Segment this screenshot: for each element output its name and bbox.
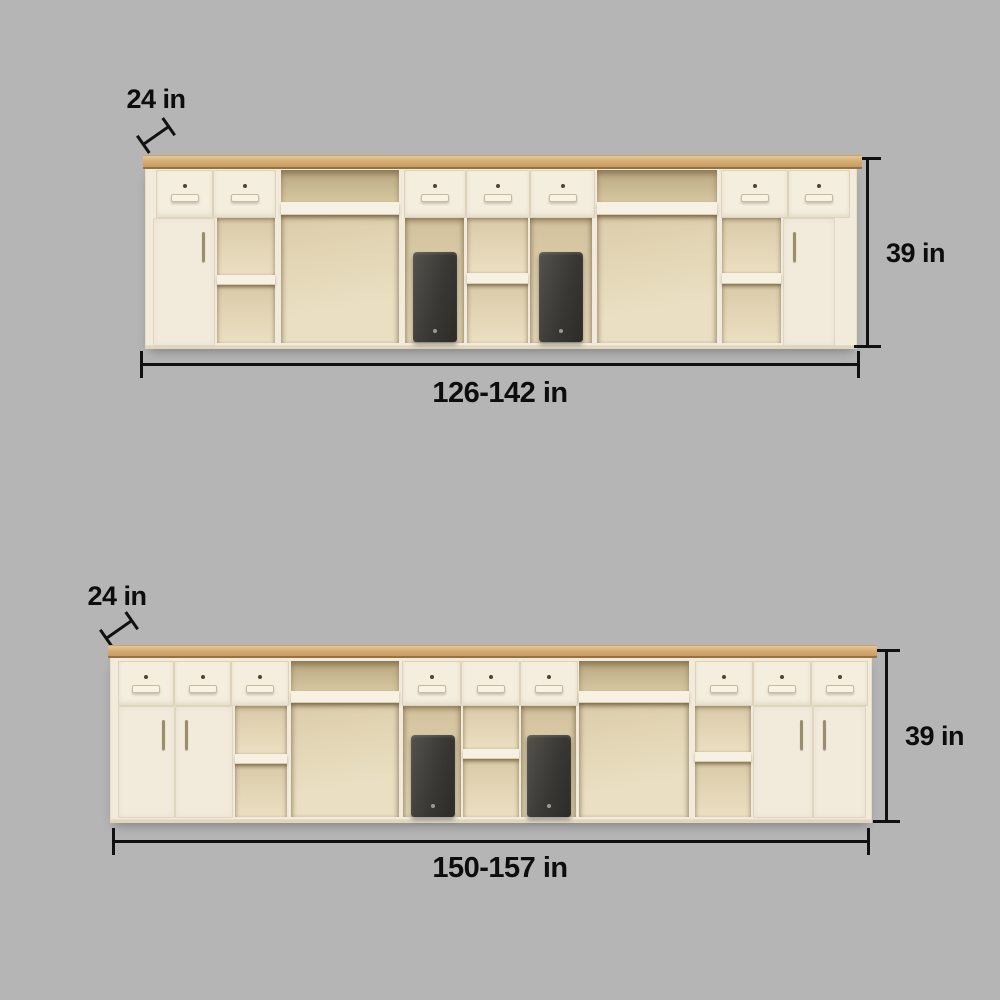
height-dimension-label: 39 in — [905, 721, 995, 752]
drawer — [402, 661, 461, 706]
shelf-ledge — [467, 273, 528, 284]
cabinet-body — [145, 166, 857, 349]
open-cubby — [695, 762, 751, 817]
drawer — [118, 661, 174, 706]
cabinet-door — [813, 706, 866, 818]
shelf-ledge — [463, 749, 519, 759]
wood-countertop — [143, 155, 862, 169]
open-compartment — [579, 703, 689, 817]
cabinet-door — [153, 218, 215, 346]
width-dimension-line — [112, 840, 870, 843]
door-handle — [793, 232, 796, 262]
pc-tower — [539, 252, 583, 342]
width-dimension-line — [140, 363, 860, 366]
door-handle — [185, 720, 188, 750]
cabinet-door — [118, 706, 175, 818]
open-cubby — [463, 706, 519, 749]
open-cubby — [695, 706, 751, 752]
cabinet-door — [175, 706, 233, 818]
open-cubby — [722, 284, 781, 343]
shelf-ledge — [217, 275, 275, 285]
drawer — [788, 170, 850, 218]
open-compartment-top — [597, 170, 717, 202]
door-handle — [162, 720, 165, 750]
open-cubby — [463, 759, 519, 817]
drawer — [695, 661, 753, 706]
drawer — [520, 661, 578, 706]
desk-return-shelf — [597, 202, 717, 215]
pc-tower — [411, 735, 455, 817]
open-cubby — [467, 284, 528, 343]
open-cubby — [722, 218, 781, 273]
drawer — [404, 170, 466, 218]
desk-return-shelf — [579, 691, 689, 703]
drawer — [213, 170, 276, 218]
height-dimension-line — [885, 649, 888, 823]
height-dimension-line — [866, 157, 869, 348]
depth-dimension-label: 24 in — [81, 581, 153, 612]
drawer — [461, 661, 520, 706]
desk-return-shelf — [281, 202, 399, 215]
door-handle — [800, 720, 803, 750]
wood-countertop — [108, 645, 877, 658]
open-cubby — [235, 764, 287, 817]
drawer — [156, 170, 213, 218]
width-dimension-label: 150-157 in — [350, 852, 650, 885]
cabinet-door — [783, 218, 835, 346]
cabinet-126-142 — [145, 155, 857, 349]
shelf-ledge — [695, 752, 751, 762]
open-compartment — [291, 703, 399, 817]
cabinet-door — [753, 706, 813, 818]
depth-tick-icon — [105, 619, 133, 640]
drawer — [530, 170, 595, 218]
open-compartment-top — [291, 661, 399, 691]
open-cubby — [235, 706, 287, 754]
open-compartment-top — [579, 661, 689, 691]
drawer — [721, 170, 788, 218]
drawer — [811, 661, 868, 706]
open-compartment — [597, 215, 717, 343]
depth-dimension-label: 24 in — [120, 84, 192, 115]
cabinet-body — [110, 655, 872, 823]
shelf-ledge — [722, 273, 781, 284]
shelf-ledge — [235, 754, 287, 764]
cabinet-150-157 — [110, 645, 872, 823]
open-compartment-top — [281, 170, 399, 202]
pc-tower — [413, 252, 457, 342]
desk-return-shelf — [291, 691, 399, 703]
pc-tower — [527, 735, 571, 817]
door-handle — [823, 720, 826, 750]
drawer — [466, 170, 530, 218]
drawer — [231, 661, 289, 706]
open-compartment — [281, 215, 399, 343]
open-cubby — [467, 218, 528, 273]
open-cubby — [217, 218, 275, 275]
height-dimension-label: 39 in — [886, 238, 976, 269]
drawer — [753, 661, 811, 706]
open-cubby — [217, 285, 275, 343]
door-handle — [202, 232, 205, 262]
width-dimension-label: 126-142 in — [350, 377, 650, 410]
drawer — [174, 661, 231, 706]
depth-tick-icon — [142, 125, 170, 146]
product-dimension-image: 24 in — [0, 0, 1000, 1000]
